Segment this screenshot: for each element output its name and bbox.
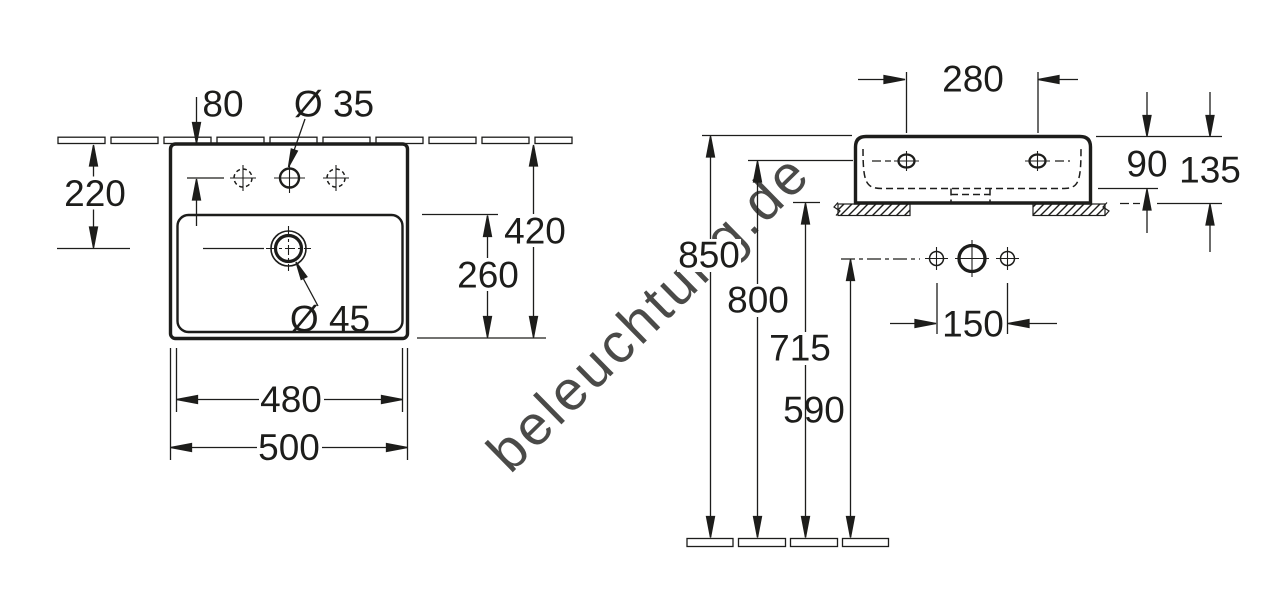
dim-715 [793, 203, 820, 538]
mounting-support-left [834, 203, 910, 216]
dim-label-outlet-spacing: 150 [942, 304, 1004, 345]
dim-label-rim-height: 850 [678, 235, 740, 276]
dim-590 [841, 259, 920, 538]
drain-outlet-center [955, 240, 989, 277]
dim-label-tap-diameter: Ø 35 [294, 84, 374, 125]
dim-label-bowl-depth: 260 [457, 255, 519, 296]
dim-label-drain-diameter: Ø 45 [290, 299, 370, 340]
outlet-hole-left [925, 247, 948, 270]
dim-label-overall-width: 500 [258, 427, 320, 468]
dim-label-overall-depth: 420 [504, 211, 566, 252]
dim-80 [193, 97, 201, 226]
mounting-support-right [1033, 203, 1109, 216]
dim-label-tap-offset: 80 [202, 84, 243, 125]
dim-label-tap-line-height: 800 [727, 280, 789, 321]
dim-label-bowl-width: 480 [260, 379, 322, 420]
dim-label-bowl-inner-depth: 90 [1126, 144, 1167, 185]
dim-label-rim-to-drain: 220 [64, 173, 126, 214]
tap-hole-right [323, 165, 349, 191]
dim-label-body-height: 135 [1179, 150, 1241, 191]
drain-hole [266, 226, 311, 271]
tap-hole-center [274, 163, 305, 193]
dim-label-underside-height: 715 [769, 328, 831, 369]
outlet-hole-right [996, 247, 1019, 270]
dim-label-hole-spacing: 280 [942, 59, 1004, 100]
basin-side-outline [856, 137, 1091, 204]
washbasin-dimension-drawing: beleuchtung.de [0, 0, 1286, 616]
floor-line [687, 539, 889, 547]
tap-hole-left [230, 165, 256, 191]
technical-drawing-page: beleuchtung.de [0, 0, 1286, 616]
dim-label-drain-height: 590 [783, 390, 845, 431]
